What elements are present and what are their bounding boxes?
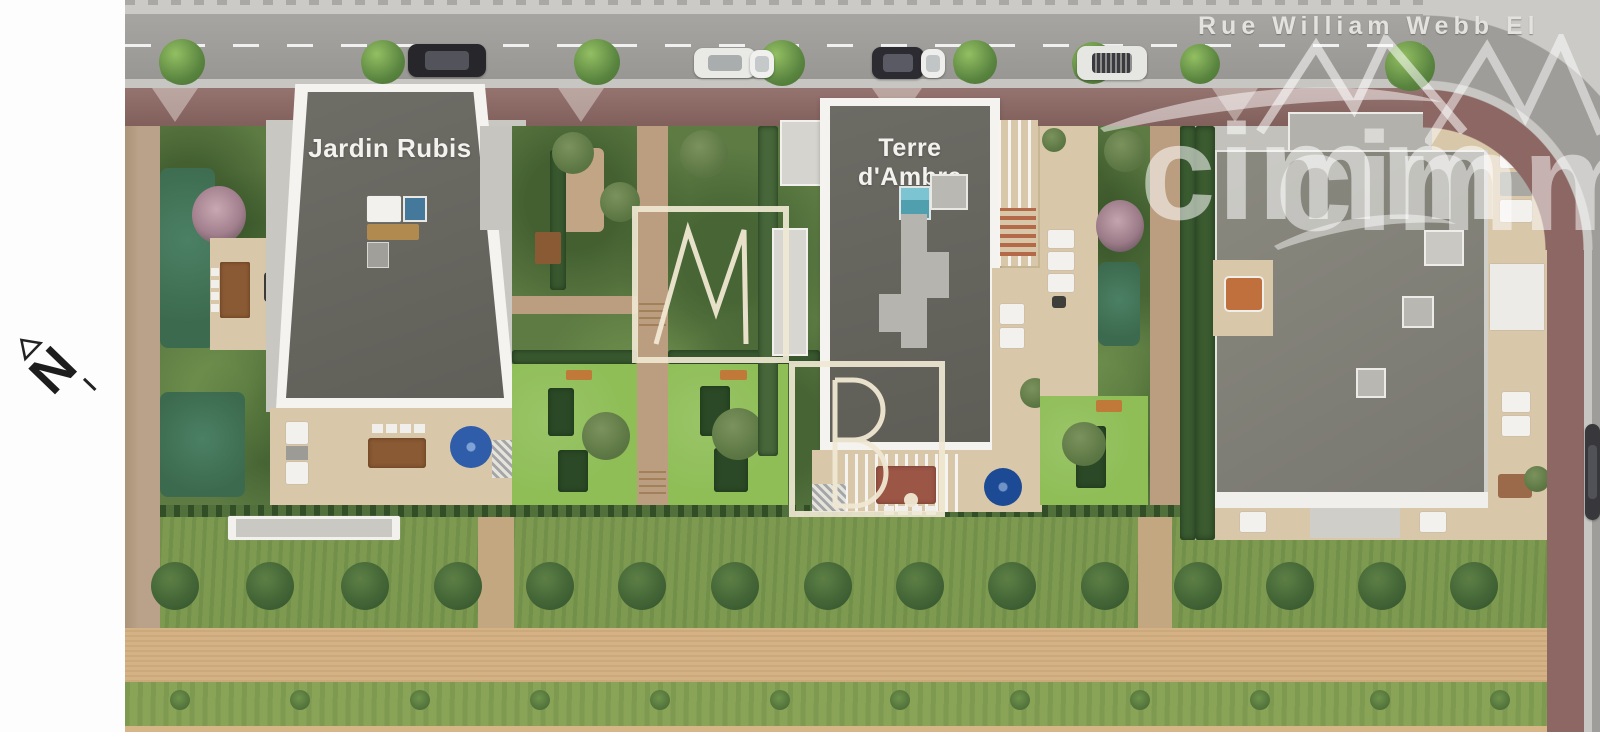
garden-bench-orange xyxy=(1096,400,1122,412)
grass-tuft xyxy=(170,690,190,710)
chair-cushions xyxy=(372,424,426,433)
garden-bush xyxy=(582,412,630,460)
flowering-shrub xyxy=(1096,200,1144,252)
meadow-bush xyxy=(151,562,199,610)
roof-vent xyxy=(367,242,389,268)
hedge-block xyxy=(558,450,588,492)
grass-tuft xyxy=(770,690,790,710)
sand-promenade xyxy=(125,628,1548,682)
meadow-bush xyxy=(1174,562,1222,610)
compass-tick xyxy=(83,378,97,391)
teal-planting xyxy=(1098,262,1140,346)
meadow-bush xyxy=(1450,562,1498,610)
street-tree xyxy=(159,39,205,85)
chair-cushions xyxy=(211,266,219,312)
bottom-green-strip xyxy=(125,682,1548,726)
path-steps xyxy=(639,468,666,494)
ground-slab xyxy=(1310,508,1400,538)
south-wall-inner xyxy=(236,519,392,537)
meadow-bush xyxy=(804,562,852,610)
parked-car xyxy=(694,48,756,78)
stair-core xyxy=(901,214,927,348)
meadow-connector-path xyxy=(1138,517,1172,628)
parked-car xyxy=(872,47,924,79)
monogram-b-letter xyxy=(795,368,939,512)
meadow-bush xyxy=(618,562,666,610)
north-label: N xyxy=(22,339,86,403)
grass-tuft xyxy=(890,690,910,710)
grass-tuft xyxy=(650,690,670,710)
parked-car xyxy=(750,50,774,78)
car-windshield xyxy=(1092,53,1131,72)
sun-loungers xyxy=(492,440,512,478)
grass-tuft xyxy=(1010,690,1030,710)
roof-lounge xyxy=(367,196,401,222)
lounger xyxy=(1000,328,1024,348)
left-footpath xyxy=(125,126,160,628)
monogram-m-letter xyxy=(644,220,776,352)
meadow-bush xyxy=(711,562,759,610)
parked-car xyxy=(1077,46,1147,80)
parasol-blue xyxy=(984,468,1022,506)
grill xyxy=(1052,296,1066,308)
striped-awning xyxy=(1000,208,1036,256)
street-tree xyxy=(953,40,997,84)
parasol-blue xyxy=(450,426,492,468)
terrace-furniture xyxy=(1420,512,1446,532)
meadow-bush xyxy=(526,562,574,610)
dining-table-wood xyxy=(368,438,426,468)
building-b-label: Terre d'Ambre xyxy=(825,134,995,192)
meadow-bush xyxy=(434,562,482,610)
stair-core-arm xyxy=(927,252,949,298)
orange-table xyxy=(1226,278,1262,310)
car-windshield xyxy=(883,54,912,72)
parked-car xyxy=(921,49,945,78)
parked-car xyxy=(408,44,486,77)
cross-path xyxy=(512,296,638,314)
grass-tuft xyxy=(410,690,430,710)
grass-tuft xyxy=(530,690,550,710)
building-c-south-wall xyxy=(1215,492,1490,508)
flowering-shrub xyxy=(192,186,246,244)
roof-skylight-blue xyxy=(403,196,427,222)
lounger xyxy=(1502,392,1530,412)
meadow-bush xyxy=(341,562,389,610)
meadow-connector-path xyxy=(478,517,514,628)
terrace-chair xyxy=(286,462,308,484)
street-tree xyxy=(574,39,620,85)
car-windshield xyxy=(708,55,743,72)
roof-box xyxy=(930,174,968,210)
red-paved-walk-vertical xyxy=(1547,250,1584,732)
meadow-bush xyxy=(896,562,944,610)
building-a-label: Jardin Rubis xyxy=(300,133,480,164)
lounger xyxy=(1502,416,1530,436)
street-name: Rue William Webb El xyxy=(1198,12,1600,41)
grass-tuft xyxy=(1250,690,1270,710)
wooden-table xyxy=(220,262,250,318)
terrace-bush xyxy=(1042,128,1066,152)
building-b-east-terrace xyxy=(992,268,1040,450)
watermark-agency-text: cimm xyxy=(1275,112,1600,252)
garden-bush xyxy=(680,130,728,178)
white-ground-pad xyxy=(1490,264,1544,330)
bench xyxy=(1048,274,1074,292)
bottom-sand-edge xyxy=(125,726,1548,732)
bench xyxy=(1048,230,1074,248)
picnic-table-wood xyxy=(535,232,561,264)
stair-core-arm xyxy=(879,294,901,332)
car-windshield xyxy=(425,51,469,69)
car-windshield xyxy=(755,56,768,72)
street-tree xyxy=(361,40,405,84)
car-windshield xyxy=(1588,445,1596,499)
meadow-bush xyxy=(988,562,1036,610)
parked-car xyxy=(1585,424,1600,520)
grass-tuft xyxy=(1370,690,1390,710)
terrace-chair xyxy=(286,422,308,444)
garden-bench-orange xyxy=(566,370,592,380)
grass-tuft xyxy=(290,690,310,710)
meadow-bush xyxy=(1266,562,1314,610)
car-windshield xyxy=(926,55,939,71)
roof-table-wood xyxy=(367,224,419,240)
roof-skylight xyxy=(1402,296,1434,328)
bench xyxy=(1048,252,1074,270)
terrace-furniture xyxy=(1240,512,1266,532)
meadow-bush xyxy=(1081,562,1129,610)
grass-tuft xyxy=(1490,690,1510,710)
garden-bush xyxy=(552,132,594,174)
meadow-bush xyxy=(1358,562,1406,610)
hedge-block xyxy=(548,388,574,436)
lounger xyxy=(1000,304,1024,324)
teal-planting xyxy=(160,392,245,497)
hedge-row xyxy=(512,350,637,364)
terrace-table-grey xyxy=(286,446,308,460)
site-plan-image: Jardin Rubis Terre d'Ambre xyxy=(0,0,1600,732)
grass-tuft xyxy=(1130,690,1150,710)
roof-skylight xyxy=(1356,368,1386,398)
garden-bench-orange xyxy=(720,370,747,380)
garden-bush xyxy=(712,408,764,460)
garden-bush xyxy=(1062,422,1106,466)
meadow-bush xyxy=(246,562,294,610)
